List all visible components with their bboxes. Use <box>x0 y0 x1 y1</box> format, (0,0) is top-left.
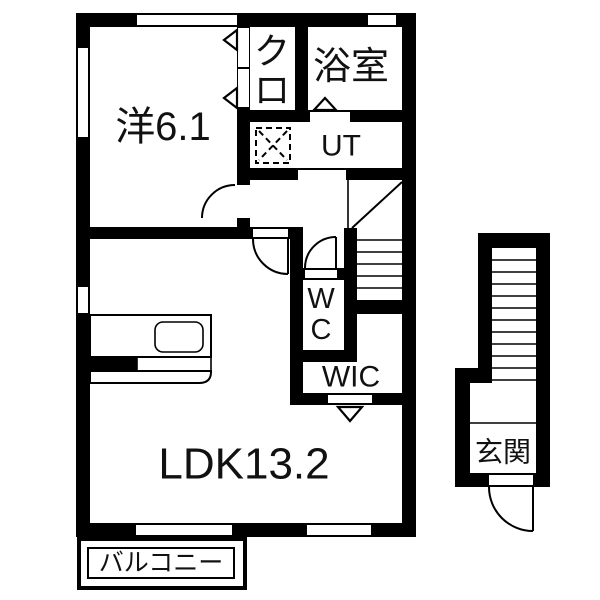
wall-ldk-wc <box>290 227 303 405</box>
window-bottom-ldk-2 <box>307 525 371 535</box>
floorplan-page: 洋6.1 ク ロ 浴室 UT W C WIC LDK13.2 バルコニー 玄関 <box>0 0 600 600</box>
window-top-bath <box>368 15 396 25</box>
entrance-door-opening <box>489 475 533 485</box>
label-wic: WIC <box>322 361 380 394</box>
window-top-western <box>137 15 237 25</box>
ldk-door-opening <box>253 229 288 237</box>
closet-door-panel-2 <box>238 69 249 107</box>
label-bathroom: 浴室 <box>313 46 389 88</box>
label-utility: UT <box>321 130 361 163</box>
wall-wc-stairs <box>344 228 357 362</box>
window-bottom-ldk-1 <box>136 525 232 535</box>
label-western-room: 洋6.1 <box>115 105 211 149</box>
window-left-western <box>78 48 88 137</box>
label-ldk: LDK13.2 <box>158 440 329 489</box>
window-left-ldk <box>78 287 88 313</box>
kitchen-partition <box>90 356 137 371</box>
label-closet-char-1: ク <box>254 31 290 72</box>
wic-opening <box>328 395 372 403</box>
label-entrance: 玄関 <box>475 437 531 468</box>
floorplan-drawing: 洋6.1 ク ロ 浴室 UT W C WIC LDK13.2 バルコニー 玄関 <box>0 0 600 600</box>
wall-right <box>402 13 416 537</box>
bath-door-opening <box>310 112 350 122</box>
ext-wall-left-lower <box>455 368 470 487</box>
western-door-opening <box>237 185 250 218</box>
wc-door-opening <box>305 270 337 278</box>
label-balcony: バルコニー <box>99 549 224 577</box>
wall-stairs-south <box>357 300 402 314</box>
label-closet-char-2: ロ <box>254 70 290 111</box>
wall-closet-bath <box>295 13 308 122</box>
label-wc-char-1: W <box>307 283 335 315</box>
ut-opening <box>298 170 346 180</box>
ext-wall-left-upper <box>478 233 492 383</box>
ext-wall-right <box>536 233 550 487</box>
closet-door-panel-1 <box>238 28 249 67</box>
label-wc-char-2: C <box>311 314 332 346</box>
